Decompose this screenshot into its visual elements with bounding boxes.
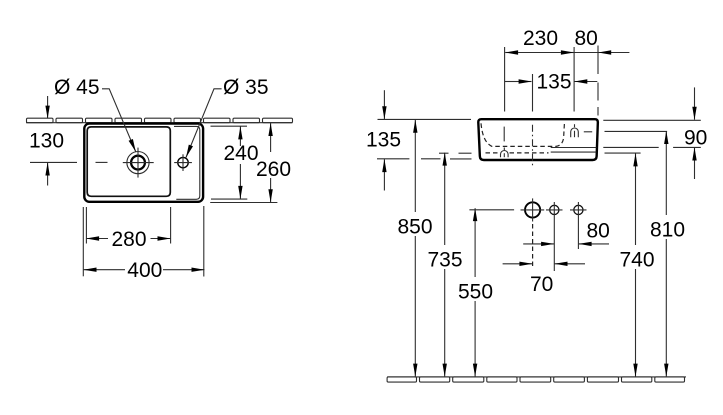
svg-text:135: 135 <box>366 129 401 152</box>
svg-text:280: 280 <box>112 228 147 251</box>
svg-text:135: 135 <box>537 71 572 94</box>
svg-text:735: 735 <box>428 249 463 272</box>
svg-text:240: 240 <box>224 142 259 165</box>
svg-text:80: 80 <box>575 27 598 50</box>
svg-text:Ø 35: Ø 35 <box>223 76 269 99</box>
svg-text:740: 740 <box>620 249 655 272</box>
svg-text:230: 230 <box>523 27 558 50</box>
svg-text:90: 90 <box>684 127 707 150</box>
svg-text:260: 260 <box>256 158 291 181</box>
svg-text:130: 130 <box>29 130 64 153</box>
svg-text:810: 810 <box>650 219 685 242</box>
svg-text:80: 80 <box>587 220 610 243</box>
svg-text:400: 400 <box>127 259 162 282</box>
svg-text:850: 850 <box>398 216 433 239</box>
svg-text:70: 70 <box>530 273 553 296</box>
svg-text:550: 550 <box>458 281 493 304</box>
svg-text:Ø 45: Ø 45 <box>54 76 100 99</box>
